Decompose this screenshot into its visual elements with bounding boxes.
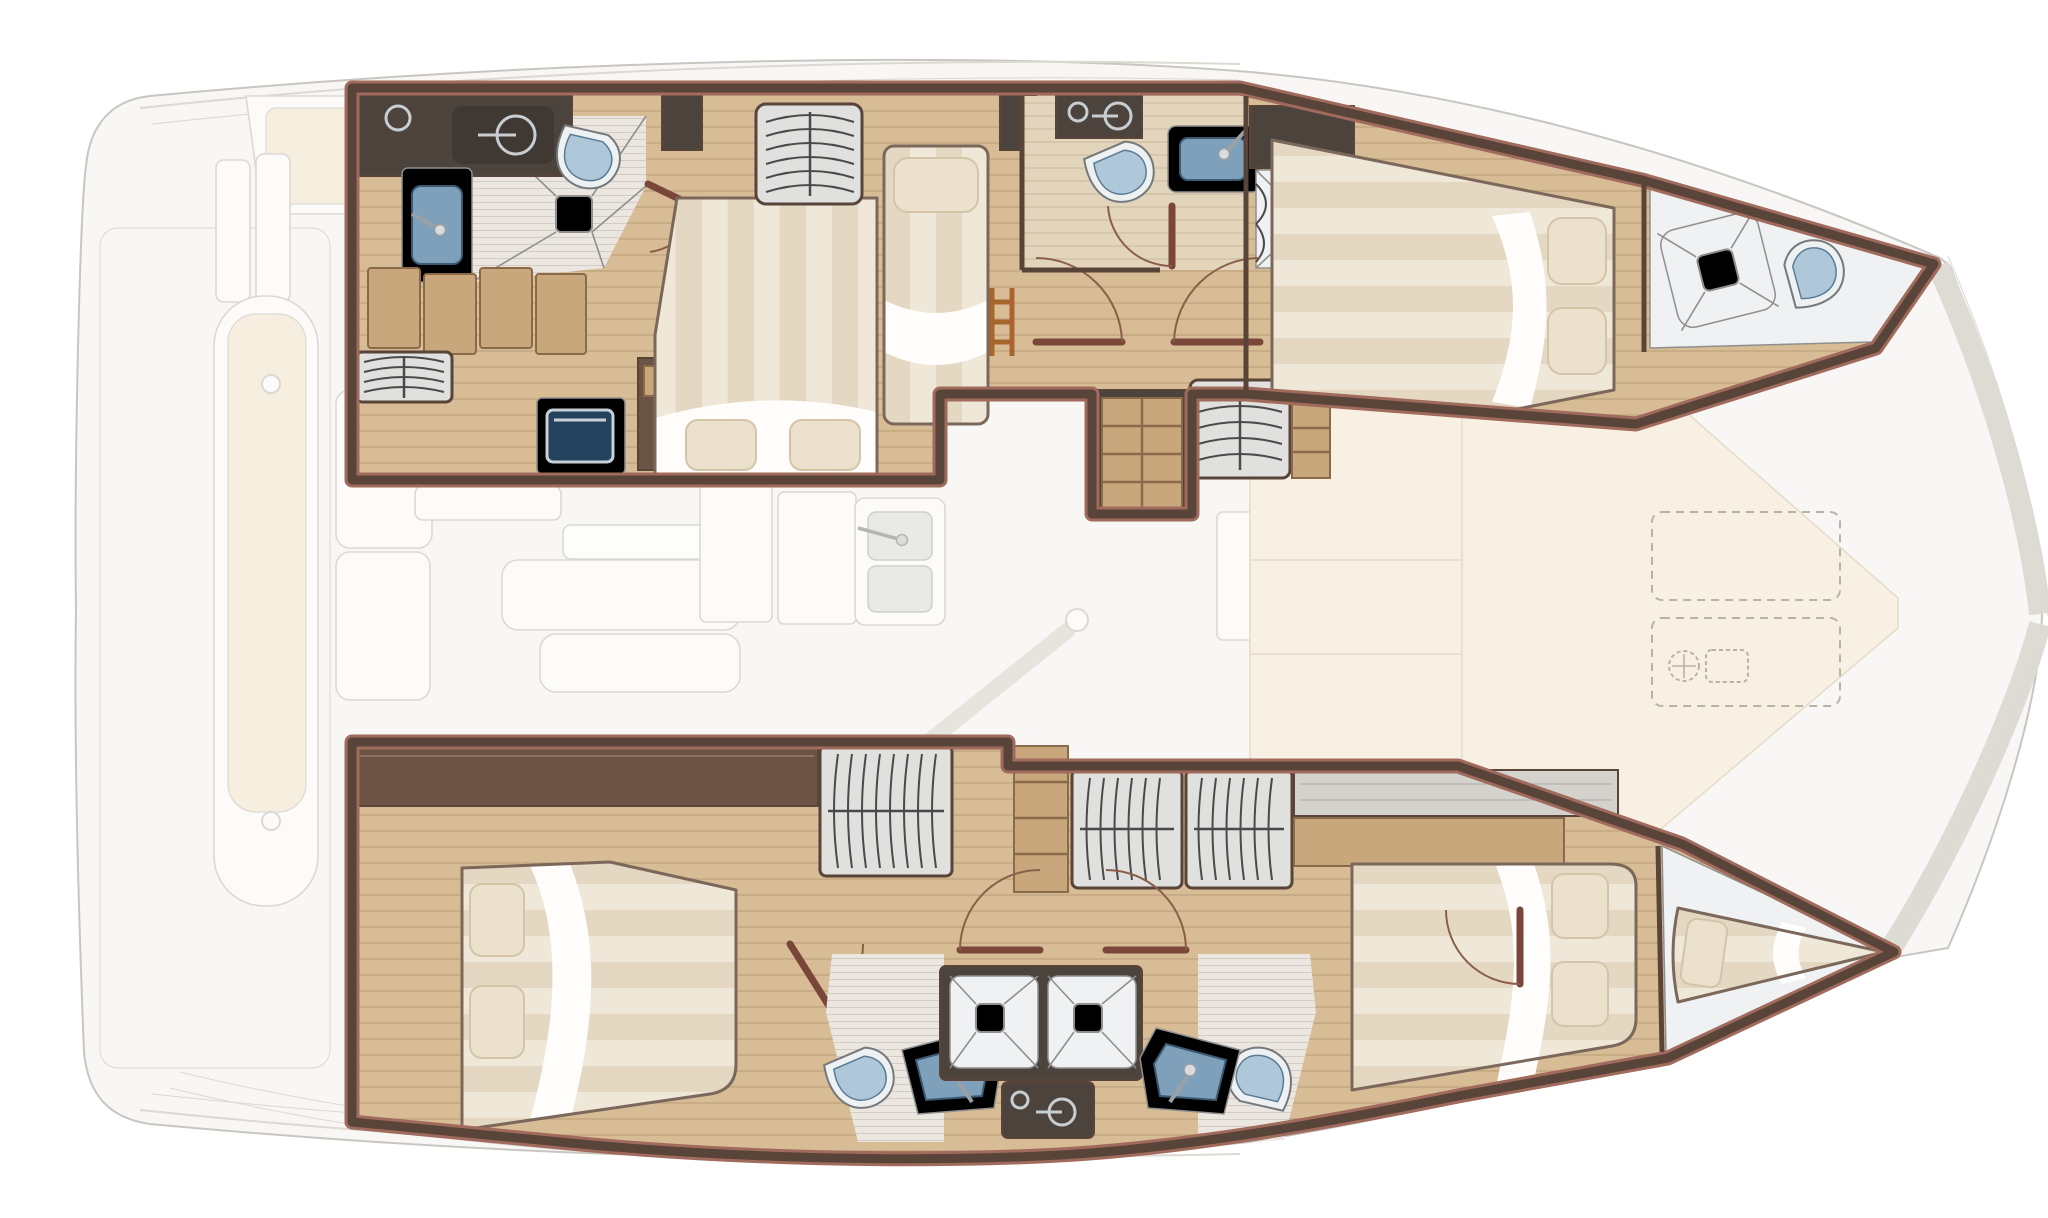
side-table bbox=[415, 486, 561, 520]
wood-counter bbox=[1294, 818, 1564, 866]
table-knob bbox=[1066, 609, 1088, 631]
pillow bbox=[1680, 918, 1729, 989]
sink-basin-2 bbox=[868, 566, 932, 612]
hanging-locker-2 bbox=[1072, 770, 1182, 888]
pillow bbox=[790, 420, 860, 470]
hanging-locker-3 bbox=[1186, 770, 1292, 888]
hanging-locker-1 bbox=[820, 746, 952, 876]
davit-post-1 bbox=[216, 160, 250, 302]
pillow bbox=[686, 420, 756, 470]
drawer-steps bbox=[368, 268, 586, 354]
hanging-locker-mid bbox=[756, 104, 862, 204]
shower-tray-2 bbox=[1048, 976, 1136, 1068]
hanging-locker-small bbox=[356, 352, 452, 402]
cleat-icon-1 bbox=[262, 375, 280, 393]
tv-screen-icon bbox=[547, 410, 613, 462]
single-berth bbox=[884, 146, 988, 424]
aft-bench-seat-2 bbox=[336, 552, 430, 700]
catamaran-floorplan bbox=[0, 0, 2048, 1218]
floorplan-stage: Catamaran yacht interior layout — top-vi… bbox=[0, 0, 2048, 1218]
shower-tray-1 bbox=[950, 976, 1038, 1068]
davit-post-2 bbox=[256, 154, 290, 302]
cabinet-panel-2 bbox=[778, 492, 856, 624]
pillow bbox=[1548, 218, 1606, 284]
bathroom-vanity bbox=[402, 168, 472, 282]
sofa-back bbox=[540, 634, 740, 692]
companionway-steps bbox=[1088, 390, 1196, 516]
pillow bbox=[1548, 308, 1606, 374]
shower-block bbox=[940, 966, 1142, 1080]
pillow bbox=[470, 986, 524, 1058]
shower-drain-icon bbox=[556, 196, 592, 232]
cabinet-panel-1 bbox=[700, 482, 772, 622]
washbasin-icon bbox=[1180, 138, 1246, 180]
tv-cabinet bbox=[537, 398, 625, 474]
shared-vanity bbox=[1002, 1082, 1094, 1138]
pillow bbox=[894, 158, 978, 212]
cleat-icon-2 bbox=[262, 812, 280, 830]
bulkhead-cabinet-1 bbox=[662, 92, 702, 150]
galley-sink bbox=[855, 498, 945, 625]
dining-table bbox=[563, 525, 711, 559]
pillow bbox=[1552, 962, 1608, 1026]
pillow bbox=[470, 884, 524, 956]
pillow bbox=[1552, 874, 1608, 938]
aft-double-bed bbox=[655, 198, 877, 477]
